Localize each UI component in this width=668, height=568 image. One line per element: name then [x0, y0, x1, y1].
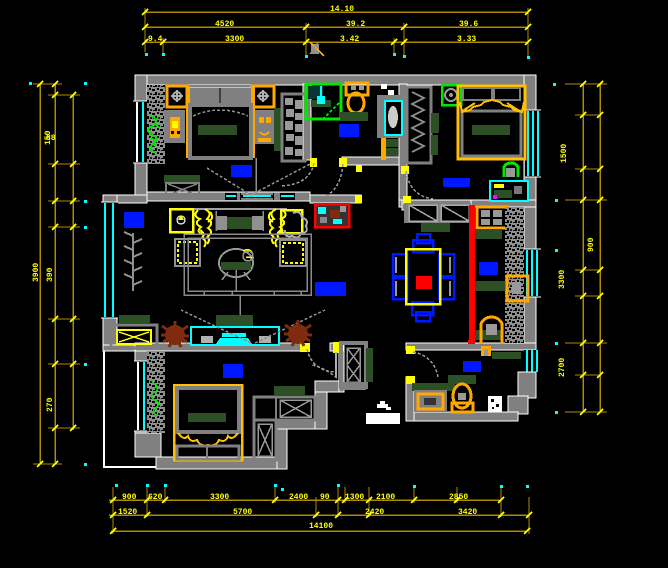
svg-text:270: 270: [46, 397, 55, 412]
svg-text:390: 390: [46, 267, 55, 282]
svg-text:3900: 3900: [32, 263, 41, 282]
svg-text:5700: 5700: [233, 508, 252, 517]
svg-text:900: 900: [587, 237, 596, 252]
svg-text:39.2: 39.2: [346, 20, 365, 29]
svg-text:1500: 1500: [560, 144, 569, 163]
svg-text:9.4: 9.4: [148, 35, 163, 44]
svg-text:2100: 2100: [376, 493, 395, 502]
svg-text:3420: 3420: [458, 508, 477, 517]
svg-text:3300: 3300: [225, 35, 244, 44]
svg-text:3300: 3300: [558, 270, 567, 289]
svg-text:4520: 4520: [215, 20, 234, 29]
svg-text:14100: 14100: [309, 522, 333, 531]
svg-text:39.6: 39.6: [459, 20, 478, 29]
svg-text:14.10: 14.10: [330, 5, 354, 14]
svg-text:620: 620: [148, 493, 163, 502]
svg-text:90: 90: [320, 493, 330, 502]
svg-text:900: 900: [122, 493, 137, 502]
svg-text:3300: 3300: [210, 493, 229, 502]
svg-text:2700: 2700: [558, 358, 567, 377]
svg-text:2420: 2420: [365, 508, 384, 517]
svg-text:88: 88: [46, 134, 56, 143]
svg-text:1300: 1300: [345, 493, 364, 502]
svg-text:2850: 2850: [449, 493, 468, 502]
svg-text:2400: 2400: [289, 493, 308, 502]
svg-text:1520: 1520: [118, 508, 137, 517]
svg-text:3.42: 3.42: [340, 35, 359, 44]
svg-text:3.33: 3.33: [457, 35, 476, 44]
